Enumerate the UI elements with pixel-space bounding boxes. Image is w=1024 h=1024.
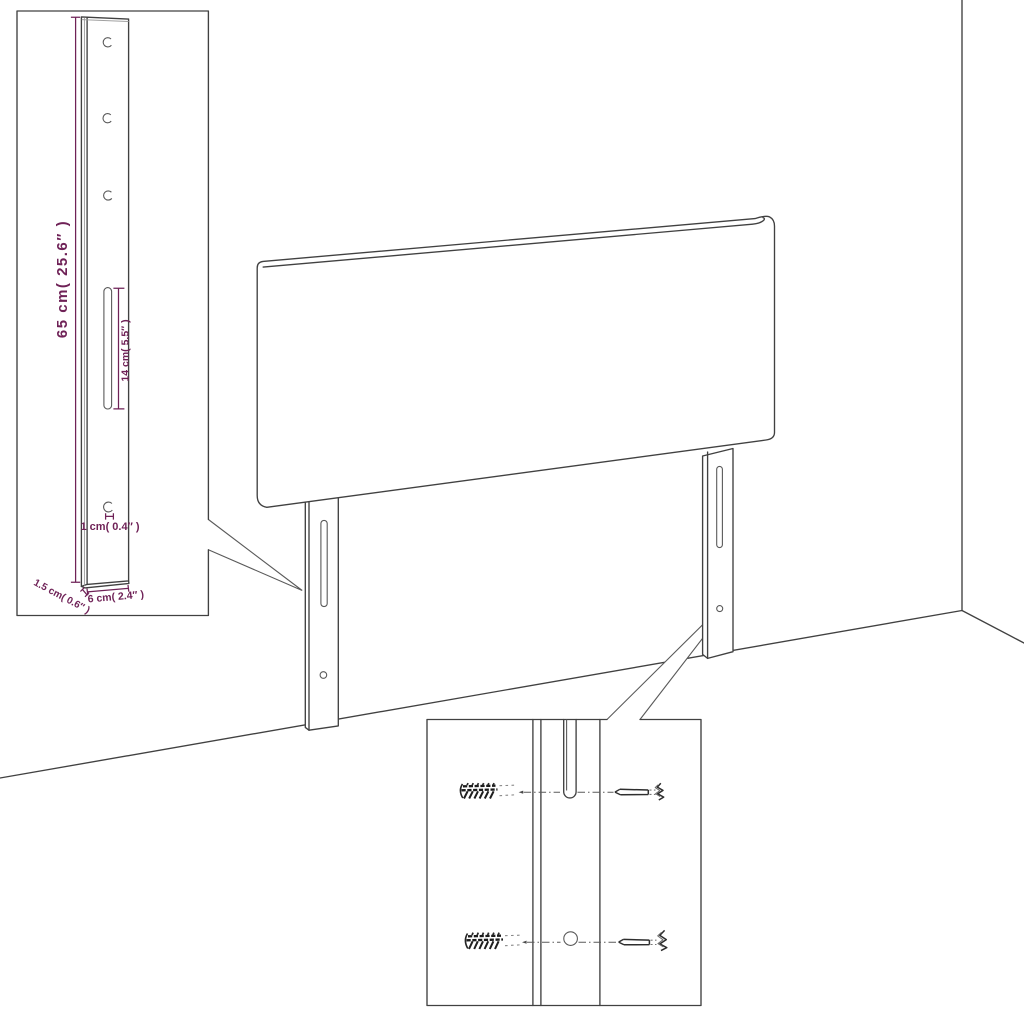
svg-text:1 cm( 0.4″ ): 1 cm( 0.4″ ) bbox=[81, 521, 140, 533]
svg-text:65 cm( 25.6″ ): 65 cm( 25.6″ ) bbox=[54, 220, 71, 338]
svg-text:14 cm( 5.5″ ): 14 cm( 5.5″ ) bbox=[120, 319, 132, 381]
